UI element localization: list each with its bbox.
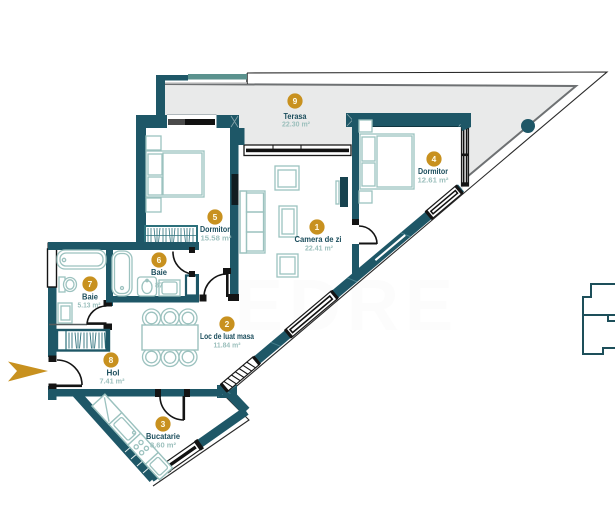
svg-text:22.41 m²: 22.41 m² (305, 244, 334, 253)
svg-text:8.60 m²: 8.60 m² (150, 441, 177, 450)
svg-text:9: 9 (293, 96, 298, 106)
svg-text:6: 6 (157, 255, 162, 265)
svg-text:7.41 m²: 7.41 m² (100, 377, 126, 386)
svg-text:87: 87 (155, 281, 163, 290)
svg-text:1: 1 (315, 222, 320, 232)
svg-text:3: 3 (161, 419, 166, 429)
svg-text:2: 2 (225, 319, 230, 329)
svg-text:4: 4 (432, 154, 437, 164)
svg-text:7: 7 (88, 279, 93, 289)
svg-text:5.13 m²: 5.13 m² (78, 301, 102, 310)
svg-text:22.30 m²: 22.30 m² (282, 120, 311, 129)
svg-text:Baie: Baie (151, 268, 167, 277)
svg-text:12.61 m²: 12.61 m² (418, 176, 450, 185)
svg-text:8: 8 (109, 355, 114, 365)
svg-text:15.58 m²: 15.58 m² (201, 234, 233, 243)
svg-text:5: 5 (213, 212, 218, 222)
svg-text:11.84 m²: 11.84 m² (214, 341, 242, 350)
